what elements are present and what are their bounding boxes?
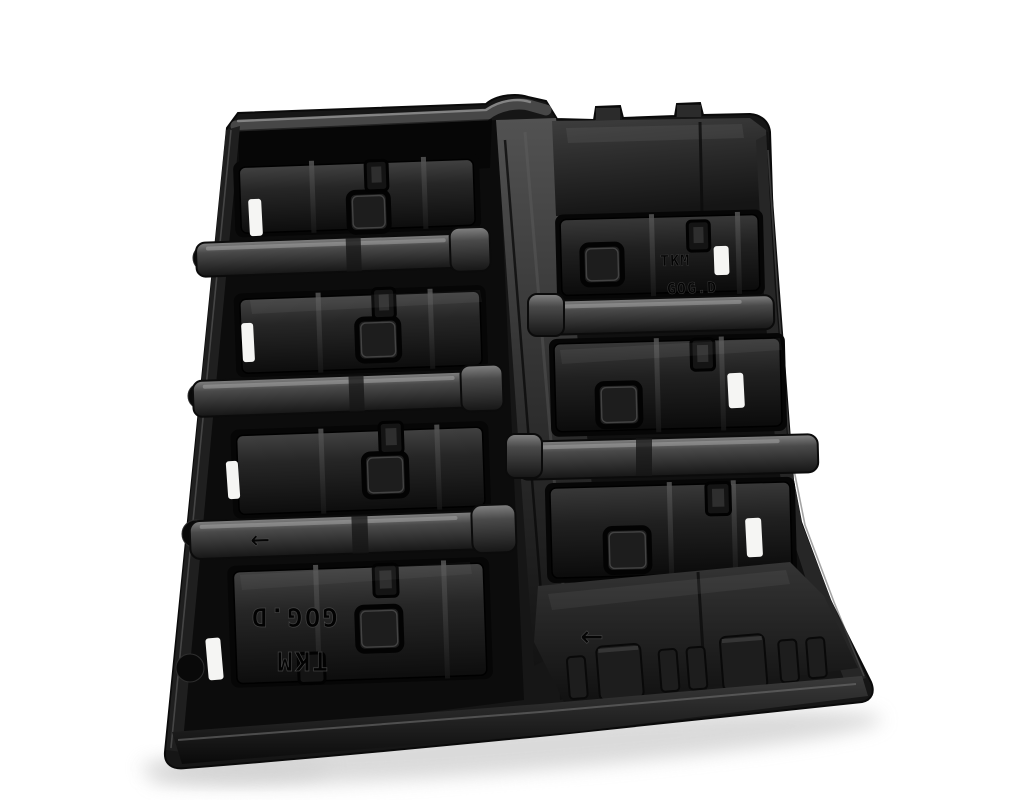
square-boss (597, 383, 641, 427)
wall-scallop (176, 654, 204, 682)
product-photo: ← TKM GOG.D (0, 0, 1024, 800)
embossed-code-mold: GOG.D (667, 279, 718, 298)
compartment-cell (233, 153, 482, 238)
divider-rail (528, 294, 774, 336)
rail-knob (449, 227, 491, 272)
label-sticker (241, 323, 255, 363)
compartment-cell (230, 419, 491, 519)
label-sticker (727, 373, 745, 409)
rail-knob (460, 364, 504, 411)
label-sticker (745, 518, 763, 558)
divider-rail (506, 434, 818, 480)
square-boss (605, 528, 650, 573)
rail-knob (506, 434, 542, 478)
embossed-code-brand: TKM (660, 251, 691, 270)
embossed-code-brand: TKM (275, 645, 328, 675)
embossed-arrow: ← (250, 526, 271, 555)
top-right-plateau (552, 105, 770, 216)
label-sticker (714, 246, 730, 276)
embossed-code-mold: GOG.D (250, 601, 338, 631)
square-boss (357, 606, 403, 652)
rail-knob (471, 504, 517, 554)
tray-photo-canvas: ← TKM GOG.D (0, 0, 1024, 800)
compartment-cell: TKM GOG.D (555, 209, 765, 300)
rail-knob (528, 294, 564, 336)
label-sticker (248, 199, 263, 237)
